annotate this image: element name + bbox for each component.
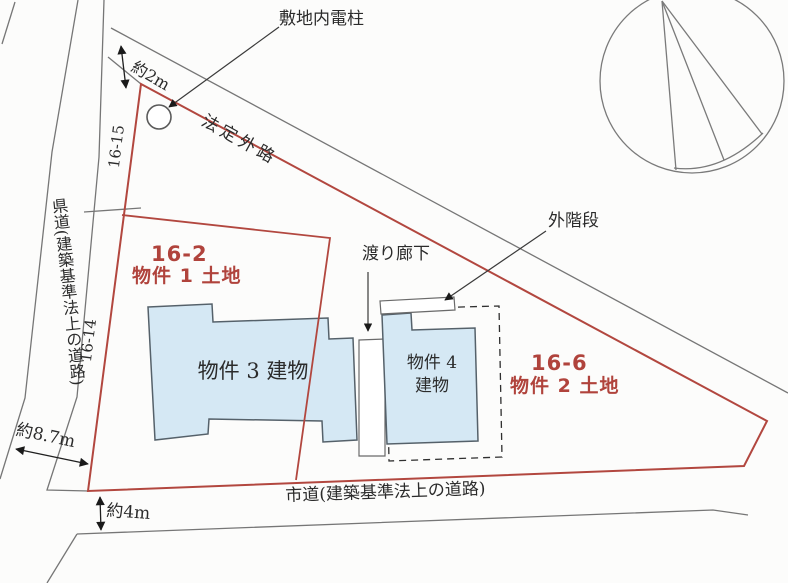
- pole-label: 敷地内電柱: [279, 10, 364, 30]
- corridor-label: 渡り廊下: [362, 245, 430, 265]
- stairs-label: 外階段: [548, 212, 599, 232]
- lot-division-tick: [84, 208, 141, 212]
- building4-label-line1: 物件 4: [394, 354, 470, 374]
- outside-stairs-footprint: [380, 297, 455, 314]
- parcel1-name: 物件 1 土地: [132, 266, 241, 288]
- compass-symbol: [600, 0, 784, 173]
- parcel1-number: 16-2: [151, 242, 208, 266]
- site-plan-diagram: 敷地内電柱 法定外路 約2m 16-15 16-14 県道(建築基準法上の道路)…: [0, 0, 788, 583]
- stairs-leader: [445, 231, 546, 300]
- compass-circle: [600, 0, 784, 173]
- dim-2m-arrow: [121, 46, 126, 88]
- building4-label-line2: 建物: [394, 377, 470, 397]
- utility-pole-symbol: [147, 105, 171, 129]
- parcel2-name: 物件 2 土地: [510, 376, 619, 398]
- city-road-north-edge: [77, 510, 748, 534]
- city-road-corner-line: [47, 534, 77, 583]
- dim-4m-arrow: [100, 497, 101, 530]
- dim-4m-label: 約4m: [106, 502, 151, 525]
- parcel2-number: 16-6: [531, 351, 588, 375]
- pole-leader: [169, 27, 279, 107]
- dim-8-7m-arrow: [16, 449, 88, 464]
- corridor-footprint: [359, 339, 385, 456]
- corner-mark: [2, 2, 15, 44]
- building3-label: 物件 3 建物: [160, 359, 346, 383]
